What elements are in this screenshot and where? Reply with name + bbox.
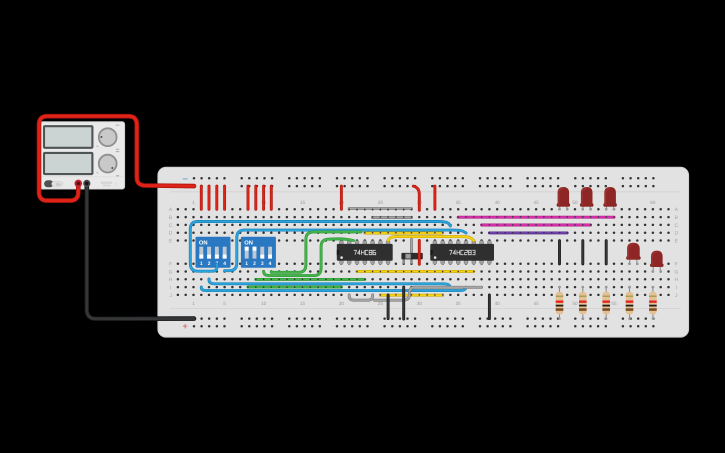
svg-text:I: I bbox=[170, 285, 171, 291]
svg-text:40: 40 bbox=[495, 200, 501, 205]
svg-text:1: 1 bbox=[192, 200, 195, 205]
svg-text:3: 3 bbox=[261, 261, 264, 267]
svg-text:1: 1 bbox=[245, 261, 248, 267]
svg-text:ON: ON bbox=[244, 240, 253, 247]
svg-text:35: 35 bbox=[456, 301, 462, 306]
svg-text:1: 1 bbox=[192, 301, 195, 306]
svg-text:2: 2 bbox=[208, 261, 211, 267]
svg-text:45: 45 bbox=[533, 200, 539, 205]
svg-text:I: I bbox=[676, 285, 677, 291]
svg-text:45: 45 bbox=[533, 301, 539, 306]
svg-text:10: 10 bbox=[261, 301, 267, 306]
svg-text:F: F bbox=[169, 262, 172, 268]
svg-text:35: 35 bbox=[456, 200, 462, 205]
svg-text:C: C bbox=[674, 223, 678, 229]
svg-text:D: D bbox=[674, 231, 678, 237]
svg-text:ON: ON bbox=[56, 182, 61, 186]
svg-text:50: 50 bbox=[572, 200, 578, 205]
svg-text:15: 15 bbox=[300, 301, 306, 306]
svg-text:D: D bbox=[169, 231, 173, 237]
svg-text:2: 2 bbox=[253, 261, 256, 267]
svg-text:G: G bbox=[169, 269, 173, 275]
svg-text:5: 5 bbox=[223, 301, 226, 306]
svg-text:60: 60 bbox=[650, 200, 656, 205]
svg-text:G: G bbox=[674, 269, 678, 275]
svg-text:4: 4 bbox=[269, 261, 272, 267]
svg-text:H: H bbox=[169, 277, 173, 283]
svg-text:25: 25 bbox=[378, 301, 384, 306]
svg-text:50: 50 bbox=[572, 301, 578, 306]
svg-text:40: 40 bbox=[495, 301, 501, 306]
svg-text:H: H bbox=[674, 277, 678, 283]
svg-text:1: 1 bbox=[200, 261, 203, 267]
svg-text:20: 20 bbox=[339, 301, 345, 306]
svg-text:4: 4 bbox=[223, 261, 226, 267]
svg-text:25: 25 bbox=[378, 200, 384, 205]
svg-text:30: 30 bbox=[417, 301, 423, 306]
svg-text:55: 55 bbox=[611, 301, 617, 306]
svg-text:F: F bbox=[675, 262, 678, 268]
svg-text:C: C bbox=[169, 223, 173, 229]
svg-text:ON: ON bbox=[199, 240, 208, 247]
svg-text:15: 15 bbox=[300, 200, 306, 205]
